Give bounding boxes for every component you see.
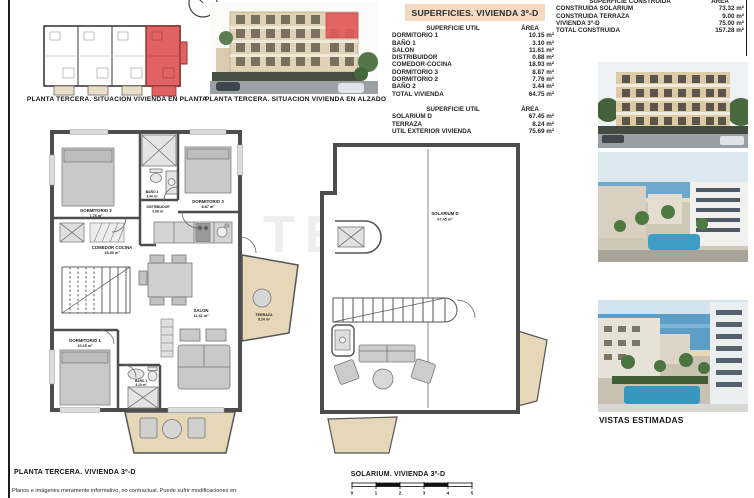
solarium-plan: SOLARIUM D 67.45 m² <box>295 135 565 465</box>
room-label: DORMITORIO 2 <box>80 208 112 213</box>
room-area: 67.45 m² <box>437 218 453 222</box>
table-row: DISTRIBUIDOR0.88 m² <box>392 54 554 61</box>
main-plan-caption: PLANTA TERCERA. VIVIENDA 3º-D <box>14 469 136 476</box>
table-row: TOTAL CONSTRUIDA157.28 m² <box>556 27 744 34</box>
column-header-label: SUPERFICIE UTIL <box>392 25 506 32</box>
table-superficie-util-vivienda: SUPERFICIE UTIL ÁREA DORMITORIO 110.15 m… <box>392 25 554 98</box>
table-row: TOTAL VIVIENDA64.75 m² <box>392 91 554 98</box>
solarium-caption: SOLARIUM. VIVIENDA 3º-D <box>308 471 488 478</box>
table-row: CONSTRUIDA SOLARIUM73.32 m² <box>556 5 744 12</box>
sofa-icon <box>359 345 415 362</box>
plan-sheet: PLANTA TERCERA. SITUACION VIVIENDA EN PL… <box>0 0 754 498</box>
table-row: DORMITORIO 38.87 m² <box>392 69 554 76</box>
table-header: SUPERFICIE UTIL ÁREA <box>392 25 554 32</box>
surfaces-title: SUPERFICIES. VIVIENDA 3º-D <box>405 4 545 21</box>
room-label: DISTRIBUIDOR <box>146 205 170 209</box>
right-page-border <box>746 0 747 56</box>
jacuzzi-icon <box>335 221 381 253</box>
bed-icon <box>60 350 110 405</box>
kitchen-counter-icon <box>154 222 232 243</box>
table-row: VIVIENDA 3º-D75.00 m² <box>556 20 744 27</box>
photo-aerial-view <box>598 152 748 262</box>
disclaimer-text: Planos e imágenes meramente informativo,… <box>12 488 432 494</box>
room-area: 3.44 m² <box>147 195 158 199</box>
room-label: COMEDOR COCINA <box>92 245 133 250</box>
shower-icon <box>128 387 158 408</box>
room-label: DORMITORIO 1 <box>69 338 101 343</box>
washing-machine-icon <box>60 223 84 242</box>
stairs-icon <box>333 298 457 322</box>
room-area: 8.24 m² <box>258 318 271 322</box>
room-area: 7.76 m² <box>89 214 103 218</box>
room-label: DORMITORIO 3 <box>192 199 224 204</box>
table-row: BAÑO 13.10 m² <box>392 40 554 47</box>
situation-plan <box>30 12 205 102</box>
room-label: SALON <box>193 308 208 313</box>
table-row: BAÑO 23.44 m² <box>392 83 554 90</box>
terrace-table-icon <box>253 289 271 307</box>
bed-icon <box>185 147 231 193</box>
views-caption: VISTAS ESTIMADAS <box>599 415 683 425</box>
wardrobe-icon <box>90 223 124 242</box>
table-row: SOLARIUM D67.45 m² <box>392 113 554 120</box>
situation-plan-caption: PLANTA TERCERA. SITUACION VIVIENDA EN PL… <box>22 96 212 103</box>
room-area: 11.61 m² <box>194 314 210 318</box>
elevation-render <box>210 2 378 96</box>
room-area: 0.88 m² <box>153 210 164 214</box>
bed-icon <box>62 148 114 206</box>
room-label: SOLARIUM D <box>431 211 458 216</box>
column-header-label: SUPERFICIE UTIL <box>392 106 506 113</box>
toilet-icon <box>150 169 162 183</box>
table-row: TERRAZA8.24 m² <box>392 121 554 128</box>
table-row: DORMITORIO 27.76 m² <box>392 76 554 83</box>
elevation-caption: PLANTA TERCERA. SITUACION VIVIENDA EN AL… <box>205 96 385 103</box>
table-row: COMEDOR-COCINA18.93 m² <box>392 61 554 68</box>
tv-cabinet-icon <box>161 319 173 357</box>
room-label: TERRAZA <box>255 313 273 317</box>
coffee-table-icon <box>373 369 393 389</box>
room-label: BAÑO 2 <box>146 189 159 194</box>
photo-sea-view <box>598 300 748 412</box>
toilet-icon <box>148 367 157 381</box>
balconies <box>54 86 176 96</box>
room-area: 8.87 m² <box>201 205 215 209</box>
table-superficie-util-exterior: SUPERFICIE UTIL ÁREA SOLARIUM D67.45 m² … <box>392 106 554 135</box>
column-header-area: ÁREA <box>506 106 554 113</box>
table-row: CONSTRUIDA TERRAZA9.00 m² <box>556 13 744 20</box>
main-floor-plan: DORMITORIO 2 7.76 m² BAÑO 2 3.44 m² DORM… <box>30 115 310 465</box>
table-row: DORMITORIO 110.15 m² <box>392 32 554 39</box>
balcony-furniture-icon <box>140 418 205 439</box>
table-header: SUPERFICIE UTIL ÁREA <box>392 106 554 113</box>
column-header-area: ÁREA <box>506 25 554 32</box>
room-area: 18.93 m² <box>104 251 120 255</box>
photo-building-render <box>598 62 748 148</box>
highlighted-unit <box>146 26 187 86</box>
room-area: 3.10 m² <box>136 383 147 387</box>
planter-area <box>328 417 397 453</box>
planter-area <box>518 331 547 406</box>
scale-tick: 5 <box>471 491 474 497</box>
shower-icon <box>142 135 176 166</box>
room-area: 10.15 m² <box>77 344 93 348</box>
washbasin-icon <box>332 325 354 356</box>
highlighted-unit-elevation <box>326 13 358 38</box>
left-page-border <box>8 0 10 498</box>
scale-tick: 4 <box>447 491 450 497</box>
table-superficie-construida: SUPERFICIE CONSTRUIDA ÁREA CONSTRUIDA SO… <box>556 0 744 34</box>
table-row: SALON11.61 m² <box>392 47 554 54</box>
